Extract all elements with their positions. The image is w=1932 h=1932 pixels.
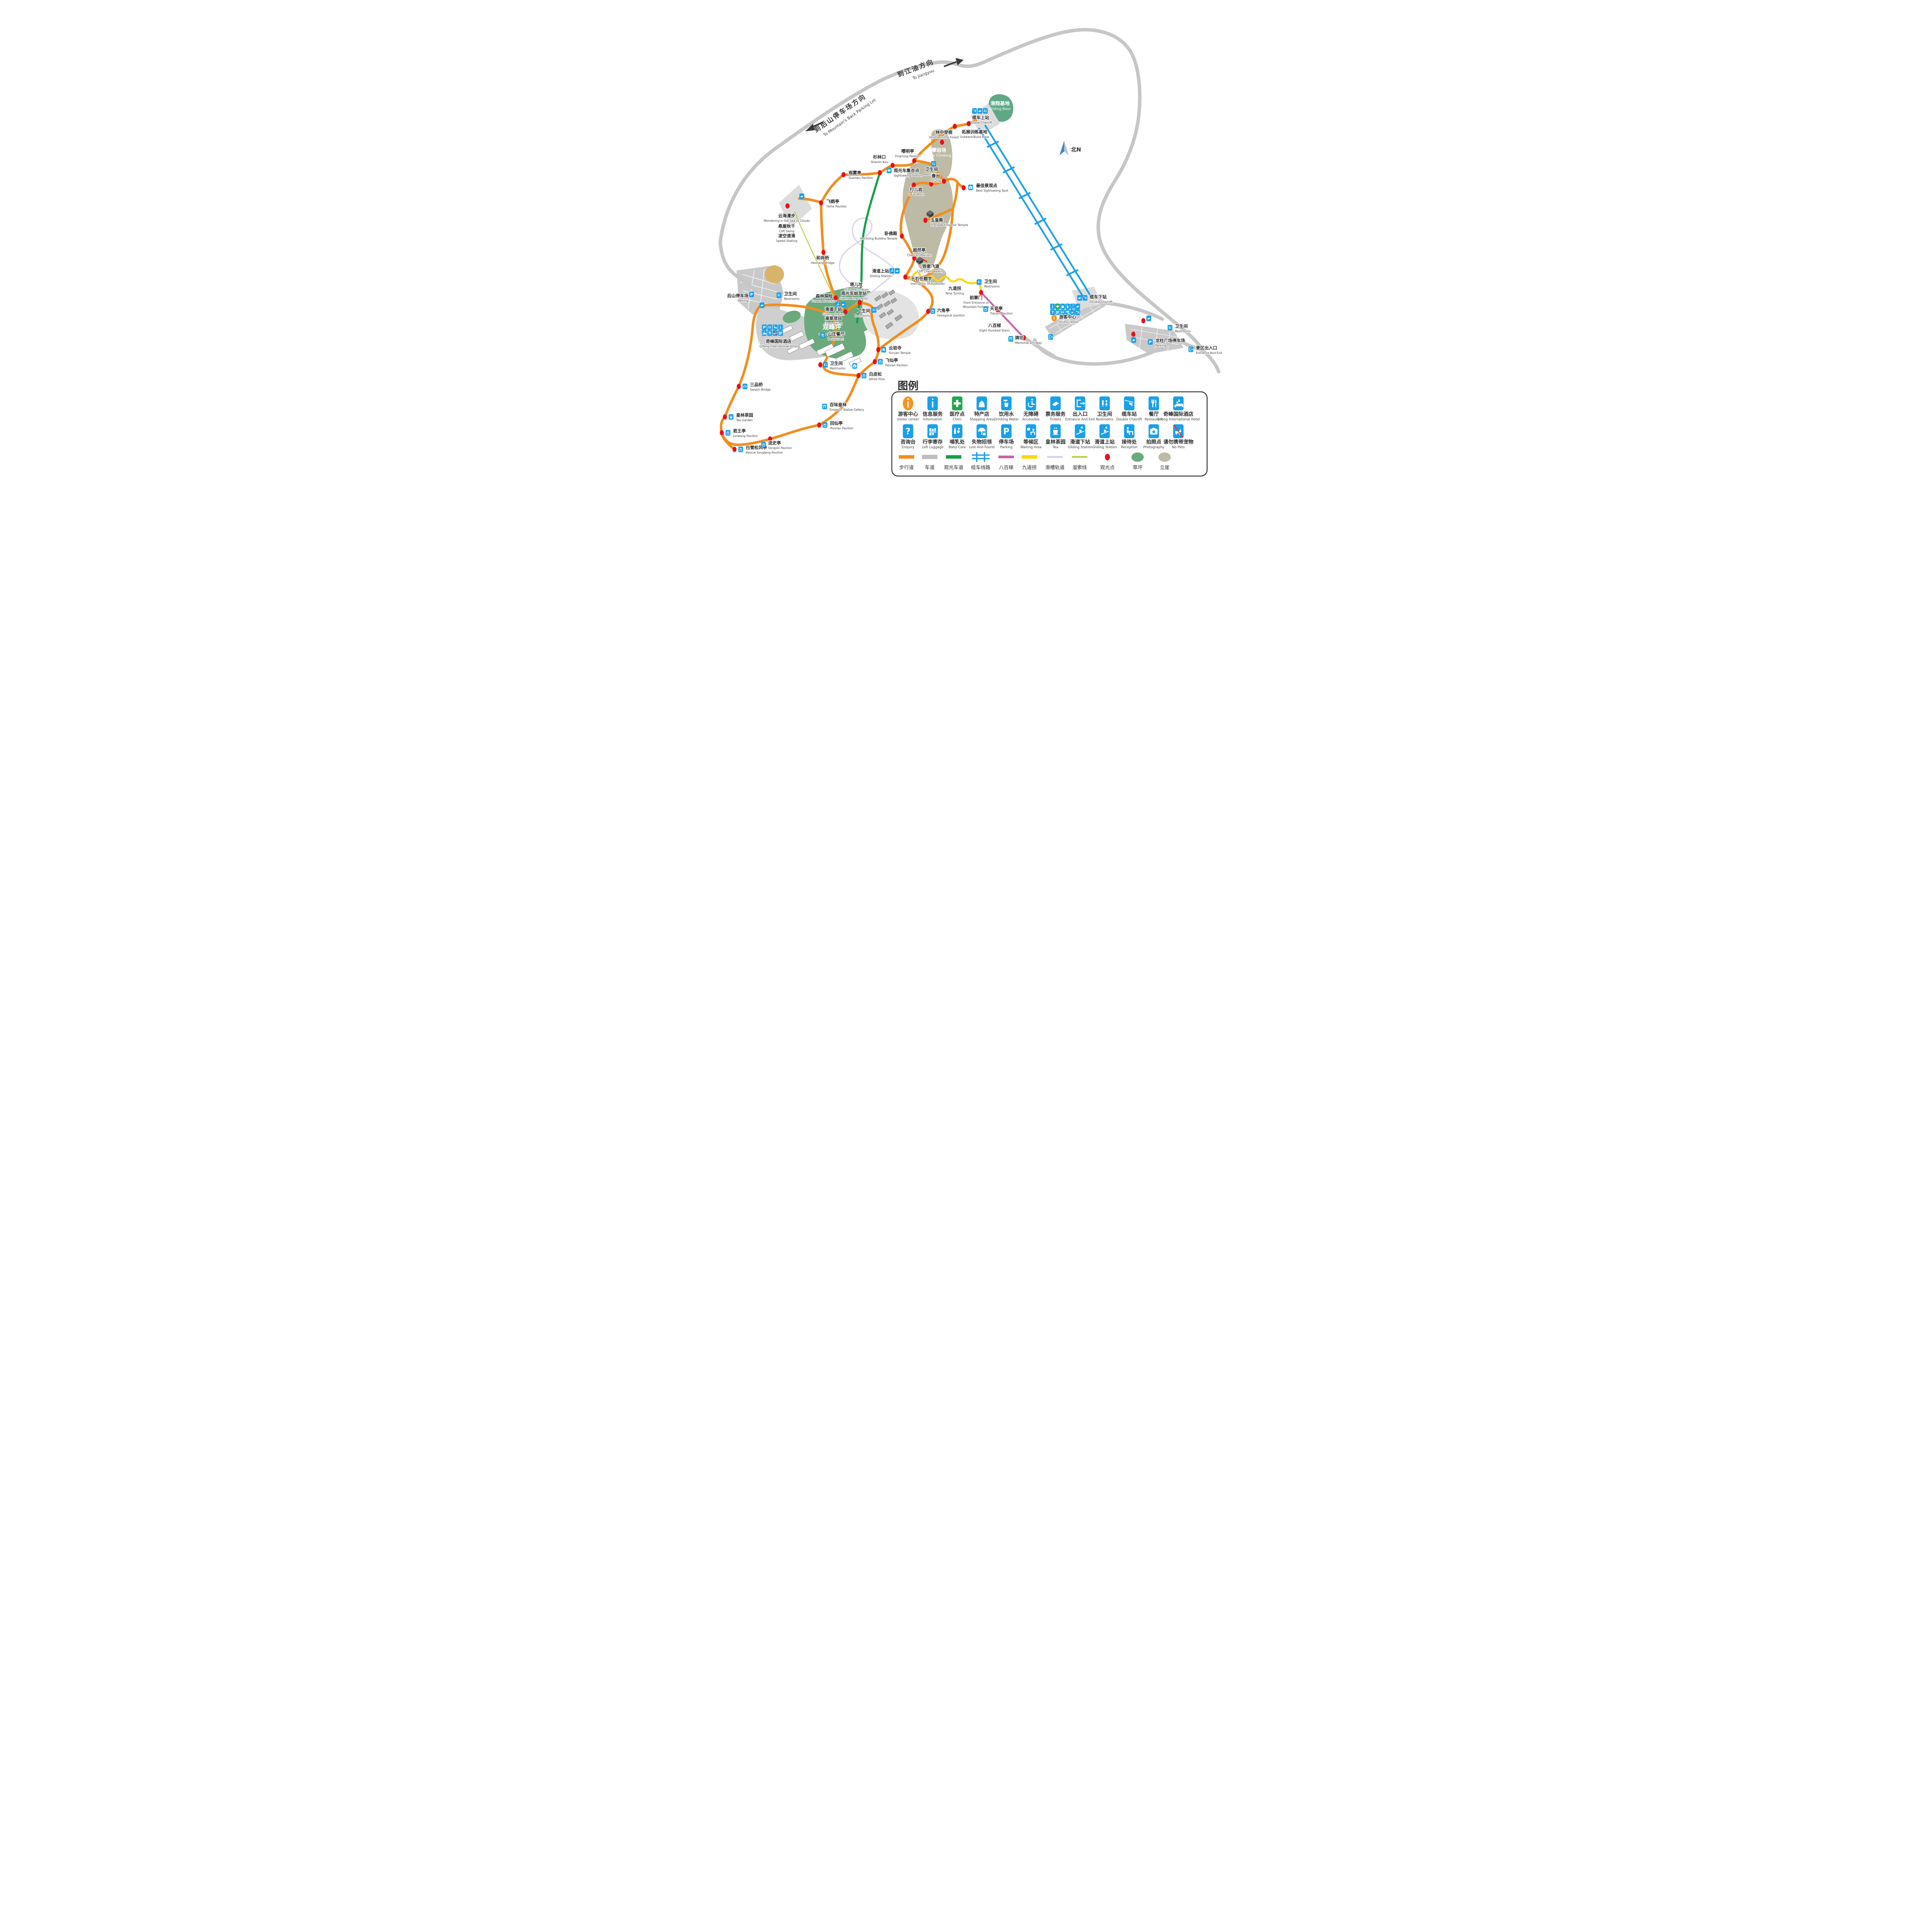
poi-label-zh: 游客中心 [1059,314,1076,320]
poi-photo-spot-white-pine [852,363,857,369]
poi-label-zh: 观光车集合点 [894,168,919,173]
legend-item-en: Qifeng International Hotel [1157,418,1200,422]
question-icon[interactable]: ? [1050,310,1055,315]
restroom-icon[interactable] [872,307,877,313]
poi-label-zh: 超然亭 [913,247,926,253]
poi-label-en: Outward-Bund Base [960,135,989,139]
info-glyph [1054,316,1054,320]
poi-label-en: Memorial archway [1015,341,1042,345]
viewpoint-dot[interactable] [819,200,823,206]
legend: 图例 游客中心Visitor center信息服务Information医疗点C… [892,380,1207,476]
restroom-icon[interactable] [823,362,828,368]
legend-line-label: 步行道 [899,464,914,470]
tea-icon[interactable] [1050,424,1061,438]
poi-label-zh: 前寨门 [970,295,983,300]
poi-cliff-swing: 悬崖秋千Cliff Swing [778,223,795,233]
info-glyph [1052,304,1053,308]
visitor-icon[interactable] [903,396,913,410]
viewpoint-dot[interactable] [953,124,957,129]
poi-label-zh: 滑道上站 [872,268,889,274]
legend-item-zh: 滑道下站 [1070,439,1090,445]
compass: 北N [1060,141,1081,155]
viewpoint-dot[interactable] [942,179,946,184]
viewpoint-dot[interactable] [1131,332,1135,337]
ticket-icon[interactable] [1077,295,1082,301]
legend-item-en: Visitor center [897,418,919,422]
restroom-icon[interactable] [1168,325,1173,331]
legend-item-en: No Pets [1172,446,1185,449]
poi-label-zh: 卫生间 [925,167,938,172]
bridge-icon[interactable] [743,384,748,389]
ticket-icon[interactable] [1146,316,1151,321]
legend-item-en: Gliding Station [1068,446,1092,449]
poi-label-en: Sightseeing Station [894,174,922,177]
poi-sanpin-bridge: 三品桥Sanpin Bridge [737,382,771,391]
poi-label-en: Tianyin Pavilion [990,312,1013,315]
poi-label-en: hexagonal pavilion [937,314,965,317]
viewpoint-dot[interactable] [720,430,724,435]
poi-gliding-base: 滑翔基地Gliding Base [989,100,1011,111]
chairlift-icon[interactable] [1124,396,1134,410]
info-icon[interactable] [1050,304,1055,310]
legend-box [892,392,1207,476]
poi-label-en: Restaurant [828,337,844,341]
photography-icon[interactable] [968,185,973,190]
legend-item-zh: 等候区 [1023,439,1038,445]
poi-label-zh: 飞鹤亭 [827,199,839,204]
legend-line-label: 观光点 [1100,464,1115,470]
poi-label-en: Gliding Station [823,313,844,316]
legend-item-zh: 失物招领 [972,439,992,445]
poi-label-zh: 春台 [932,173,940,179]
viewpoint-dot[interactable] [818,362,822,367]
info-icon[interactable] [778,325,783,330]
baby-icon[interactable] [952,424,963,438]
legend-item-en: Clinic [953,418,962,422]
legend-item-zh: 咨询台 [900,439,915,445]
poi-label-en: Double Chairlift [969,121,992,124]
poi-label-en: Restrooms [984,285,1000,288]
restroom-icon[interactable] [977,279,982,285]
poi-ticket-back-parking [760,303,765,308]
restaurant-icon[interactable] [1149,396,1159,410]
legend-item-zh: 无障碍 [1023,411,1038,417]
poi-label-zh: 林中穿梭 [935,129,953,135]
viewpoint-dot[interactable] [817,422,821,428]
poi-label-zh: 打儿岩 [910,187,923,192]
water-icon[interactable] [1065,304,1070,310]
viewpoint-dot[interactable] [873,359,877,364]
viewpoint-dot[interactable] [979,290,983,295]
zipline [794,211,836,301]
poi-label-en: Songshi Pavilion [768,446,792,450]
compass-needle-left [1060,141,1064,155]
pavilion-icon[interactable] [983,306,988,312]
viewpoint-dot[interactable] [733,447,736,452]
poi-label-en: Yingming Pavilion [895,155,921,158]
lostfound-icon[interactable] [976,424,987,438]
parking-icon[interactable]: P [1148,339,1153,345]
viewpoint-dot[interactable] [962,185,966,190]
legend-item-en: Accessible [1022,418,1040,422]
poi-label-zh: 塔儿坟 [850,282,863,287]
viewpoint-dot[interactable] [1141,318,1145,323]
ticket-icon[interactable] [978,108,983,114]
clinic-icon[interactable] [1055,304,1060,310]
poi-label-en: Yunyan Temple [888,351,911,355]
clinic-icon[interactable] [952,396,963,410]
legend-item-zh: 票务服务 [1046,411,1066,417]
chairlift-icon[interactable] [1083,295,1088,301]
pavilion-icon[interactable] [726,430,731,436]
luggage-icon[interactable] [927,424,938,438]
poi-label-en: Junwang Pavilion [733,434,758,438]
poi-label-en: Restrooms [830,367,845,370]
viewpoint-dot[interactable] [842,172,845,177]
road-archway-link [1024,338,1054,356]
poi-label-en: White Pine [869,378,885,381]
poi-label-en: Front Entrance of [963,301,989,304]
poi-tianyin-pavilion: 天音亭Tianyin Pavilion [983,306,1013,315]
ticket-icon[interactable] [1131,337,1136,343]
poi-label-zh: 卫生间 [857,308,870,313]
gliding-icon[interactable] [1099,424,1110,438]
parking-icon[interactable]: P [1001,424,1012,438]
poi-label-en: Double Chairlift [1090,300,1112,304]
poi-label-zh: 山庄餐厅 [828,331,845,337]
restaurant-icon[interactable] [820,333,825,338]
viewpoint-dot[interactable] [923,218,927,223]
poi-label-en: Heshang Bridge [811,261,835,265]
legend-item-en: Lost And Found [969,446,995,449]
poi-shanlin-kou: 杉林口Shanlin Kou [871,154,895,168]
exit-icon[interactable] [1075,396,1085,410]
poi-hexagonal-pavilion: 六角亭hexagonal pavilion [926,308,965,317]
poi-label-zh: 云海漫步 [778,213,795,218]
viewpoint-dot[interactable] [821,250,825,255]
poi-label-en: Nine Turning [946,292,964,295]
legend-item-zh: 特产店 [974,411,989,417]
poi-label-zh: 拓展训练基地 [962,129,987,134]
legend-item-zh: 行李寄存 [922,439,943,445]
chairlift-icon[interactable] [972,108,977,114]
poi-label-zh: 回仙亭 [830,420,843,426]
shopping-icon[interactable] [976,396,987,410]
poi-label-zh: 攀岩场 [932,147,946,153]
poi-spot-ticket-east [1141,316,1151,323]
poi-label-en: Feixian Pavilion [885,364,908,367]
scenic-area-map: 北N 到江油方向 To Jiangyou 到后山停车场方向 To Mountai… [663,0,1269,487]
poi-label-zh: 飞仙亭 [885,357,898,363]
legend-item-zh: 皇林茶园 [1046,439,1066,445]
poi-label-zh: 于右任题字 [911,276,932,281]
legend-item-en: Left Luggage [922,446,944,449]
nopets-icon[interactable] [773,330,778,336]
legend-item-zh: 游客中心 [898,411,918,417]
poi-label-zh: 缆车下站 [1090,294,1107,299]
poi-label-zh: 滑翔基地 [990,100,1010,106]
hotel-icon[interactable] [762,330,767,336]
poi-label-zh: 卫生间 [830,361,843,366]
poi-label-zh: 和尚桥 [816,255,830,260]
poi-label-zh: 百味皇林 [830,402,847,407]
legend-item-zh: 停车场 [999,439,1014,445]
viewpoint-dot[interactable] [857,373,861,378]
viewpoint-dot[interactable] [858,300,862,305]
legend-item-zh: 接待处 [1122,439,1137,445]
restroom-icon[interactable] [983,108,988,114]
poi-label-zh: 白皮松 [869,371,882,377]
hotel-icon[interactable] [1173,396,1184,410]
parking-glyph: P [1003,427,1009,437]
legend-item-en: Double Chairlift [1116,418,1142,422]
parking-glyph: P [750,293,753,297]
viewpoint-dot[interactable] [926,309,930,314]
poi-label-en: Forest Adventure [812,299,837,303]
poi-label-en: Sanpin Bridge [750,388,771,391]
legend-item-en: Waiting Area [1020,446,1042,449]
legend-item-en: Shopping Area [969,418,994,422]
info-glyph [932,398,934,407]
poi-restrooms-vc-parking [1071,306,1077,312]
poi-label-en: Gliding Station [870,274,891,278]
question-icon[interactable]: ? [903,424,913,438]
legend-line-label: 观光车道 [944,464,964,470]
poi-label-zh: 皇林茶园 [736,412,753,418]
legend-item-en: Photography [1143,446,1165,449]
poi-exit-vc [1048,334,1053,340]
parking-icon[interactable]: P [762,325,767,330]
poi-label-en: Guanwu Pavilion [849,176,873,180]
legend-item-en: Reception [1121,446,1138,449]
viewpoint-dot[interactable] [940,139,944,145]
pavilion-icon[interactable] [738,447,743,452]
poi-label-zh: 云岩寺 [889,345,901,350]
poi-label-zh: 卫生间 [784,291,797,296]
accessible-icon[interactable] [1026,396,1036,410]
ticket-icon[interactable] [799,194,804,199]
bus-glyph [888,169,890,172]
poi-label-zh: 最佳景观点 [976,183,997,188]
legend-item-en: Entrance And Exit [1065,418,1095,422]
water-icon[interactable] [1001,396,1012,410]
pavilion-icon[interactable] [878,359,883,365]
legend-item-zh: 出入口 [1073,411,1088,417]
poi-label-zh: 滑草项目 [825,316,842,321]
poi-label-en: Speed Skating [776,239,798,243]
photography-icon[interactable] [852,363,857,369]
poi-label-en: Visitor center [1059,320,1079,324]
poi-label-en: Qifeng International Hotel [760,345,798,348]
poi-label-zh: 滑道下站 [825,306,842,312]
legend-item-zh: 哺乳处 [950,439,965,445]
legend-line-label: 溜索线 [1072,464,1087,470]
viewpoint-dot[interactable] [900,233,904,239]
poi-label-zh: 奇峰国际酒店 [766,338,791,344]
legend-item-zh: 拍照点 [1146,439,1161,445]
shopping-icon[interactable] [1060,304,1065,310]
info-glyph [907,398,909,407]
legend-item-en: Gliding Station [1092,446,1117,449]
photography-icon[interactable] [1149,424,1159,438]
restroom-icon[interactable] [777,293,782,298]
legend-item-en: Tickets [1049,418,1061,422]
legend-line-label: 滑槽轨道 [1045,464,1065,470]
viewpoint-dot[interactable] [903,274,907,280]
info-icon[interactable] [927,396,938,410]
poi-label-en: Gliding Base [989,107,1011,111]
archway-icon[interactable] [1009,336,1014,342]
pavilion-icon[interactable] [761,442,766,448]
poi-label-zh: 龙柱广场停车场 [1155,338,1185,343]
poi-label-zh: 铁索飞渡 [922,264,940,269]
poi-label-zh: 缆车上站 [972,115,989,120]
slide-track-loop [840,218,896,284]
restroom-icon[interactable] [767,325,772,330]
poi-best-sightseeing-spot: 最佳景观点Best Sightseeing Spot [962,183,1009,192]
poi-label-en: Wondering in the Sea of Clouds [764,219,810,223]
ticket-icon[interactable] [1050,396,1061,410]
poi-label-zh: 君王亭 [733,428,746,434]
legend-item-en: Parking [1000,446,1012,449]
poi-feixian-pavilion: 飞仙亭Feixian Pavilion [873,357,908,367]
ticket-icon[interactable] [760,303,765,308]
poi-label-en: Da'er Rock [908,193,925,196]
poi-label-zh: 天音亭 [990,306,1003,311]
exit-icon[interactable] [1048,334,1053,340]
legend-item-en: Tea [1052,446,1058,449]
restaurant-icon[interactable] [767,330,772,336]
viewpoint-dot[interactable] [967,121,971,126]
poi-label-zh: 嘤明亭 [901,148,914,154]
poi-label-zh: 九道拐 [948,286,961,291]
legend-item-zh: 请勿携带宠物 [1163,439,1194,445]
viewpoint-dot[interactable] [912,158,916,163]
reception-icon[interactable] [1124,424,1134,438]
poi-label-en: Huixian Pavilion [830,427,853,430]
direction-back-lot: 到后山停车场方向 To Mountain's Back Parking Lot [805,89,877,140]
poi-label-zh: 三品桥 [750,382,763,387]
luggage-icon[interactable] [778,330,783,336]
poi-label-en: Restrooms [784,297,799,301]
pavilion-icon[interactable] [823,422,828,428]
legend-item-en: Information [923,418,942,422]
poi-label-en: Restrooms [1175,330,1190,333]
legend-item-en: Enquiry [902,446,915,449]
viewpoint-dot[interactable] [737,384,741,389]
poi-label-zh: 送史亭 [768,440,781,446]
poi-label-en: Rock Climbing [927,154,951,158]
poi-label-en: Chuntai [930,179,941,183]
poi-emperor-statue-gallery: 百味皇林Emperor Statue Gallery [822,402,864,412]
temple-icon[interactable] [881,347,886,353]
legend-line-label: 缆车线路 [971,464,991,470]
poi-label-en: Cliff Swing [779,230,794,233]
poi-label-en: Baixue Songfeng Pavilion [746,451,783,454]
legend-item-zh: 餐厅 [1148,411,1159,417]
legend-title: 图例 [898,380,918,392]
legend-item-en: Baby Care [949,446,966,449]
nopets-icon[interactable] [1173,424,1184,438]
gliding-icon[interactable] [889,268,895,274]
tan-circle [765,265,784,283]
ticket-icon[interactable] [895,268,900,274]
restroom-icon[interactable] [931,161,936,167]
legend-item-zh: 饮用水 [998,411,1014,417]
map-canvas: 北N 到江油方向 To Jiangyou 到后山停车场方向 To Mountai… [663,0,1269,487]
restroom-icon[interactable] [1071,306,1077,312]
poi-label-en: Restrooms [855,314,870,318]
legend-item-zh: 信息服务 [923,411,943,417]
poi-label-zh: 景区出入口 [1196,345,1217,350]
viewpoint-dot[interactable] [878,170,882,175]
visitor-icon[interactable] [1051,315,1057,321]
poi-label-zh: 观光车始发站 [841,291,867,296]
waiting-icon[interactable] [1026,424,1036,438]
compass-needle-right [1064,141,1069,155]
poi-label-zh: 卧佛殿 [884,231,898,236]
viewpoint-dot[interactable] [786,203,789,209]
legend-item-zh: 滑道上站 [1095,439,1115,445]
poi-label-en: Parking [738,299,748,303]
poi-label-zh: 六角亭 [937,308,950,313]
reception-icon[interactable] [773,325,778,330]
poi-nine-turning: 九道拐Nine Turning [946,286,964,295]
poi-label-zh: 玉皇殿 [930,217,944,223]
poi-label-en: Cliff Chain Walking [917,270,944,273]
restroom-icon[interactable] [1099,396,1110,410]
poi-label-en: Emperor Statue Gallery [830,408,864,412]
poi-label-en: Entrance And Exit [1196,351,1222,355]
parking-glyph: P [1149,340,1152,344]
legend-item-zh: 医疗点 [950,411,965,417]
poi-label-en: Eight Hundred Stairs [980,329,1010,332]
tea-icon[interactable] [729,414,734,420]
poi-label-en: Chaoran Pavilion [907,253,932,257]
poi-label-zh: 悬崖秋千 [778,223,795,229]
poi-label-zh: 卫生间 [1175,323,1188,329]
viewpoint-dot[interactable] [723,414,727,420]
poi-label-zh: 后山停车场 [727,293,748,298]
bus-icon[interactable] [887,168,892,173]
parking-glyph: P [763,325,766,330]
gliding-icon[interactable] [1075,424,1085,438]
pavilion-icon[interactable] [930,308,935,314]
poi-front-entrance-fortress: 前寨门Front Entrance ofMountain Fortress [963,290,989,309]
pavilion-icon[interactable] [862,373,867,379]
poi-label-en: Parking [1155,344,1166,347]
poi-label-zh: 杉林口 [873,154,886,160]
poi-label-en: Shanlin Kou [871,160,888,164]
exit-icon[interactable] [1189,347,1194,352]
poi-taer-mausoleum: 塔儿坟Ta'er Mausoleum [844,282,869,291]
question-glyph: ? [1051,310,1054,315]
legend-line-label: 车道 [925,464,935,470]
legend-item-zh: 缆车站 [1122,411,1137,417]
poi-label-zh: 凌空速滑 [778,233,795,238]
poi-label-en: Inscription of Yu Youren [911,282,945,286]
poi-label-zh: 卫生间 [984,279,997,284]
viewpoint-dot[interactable] [891,163,895,168]
poi-label-en: The Jade Emperor Temple [930,223,968,227]
legend-item-en: Restrooms [1096,418,1114,422]
viewpoint-dot[interactable] [876,347,880,352]
info-glyph [780,325,781,329]
poi-eight-hundred-stairs: 八百梯Eight Hundred Stairs [980,323,1010,332]
parking-icon[interactable]: P [749,292,754,298]
archway-icon[interactable] [822,404,827,410]
terrain-areas [736,94,1184,361]
